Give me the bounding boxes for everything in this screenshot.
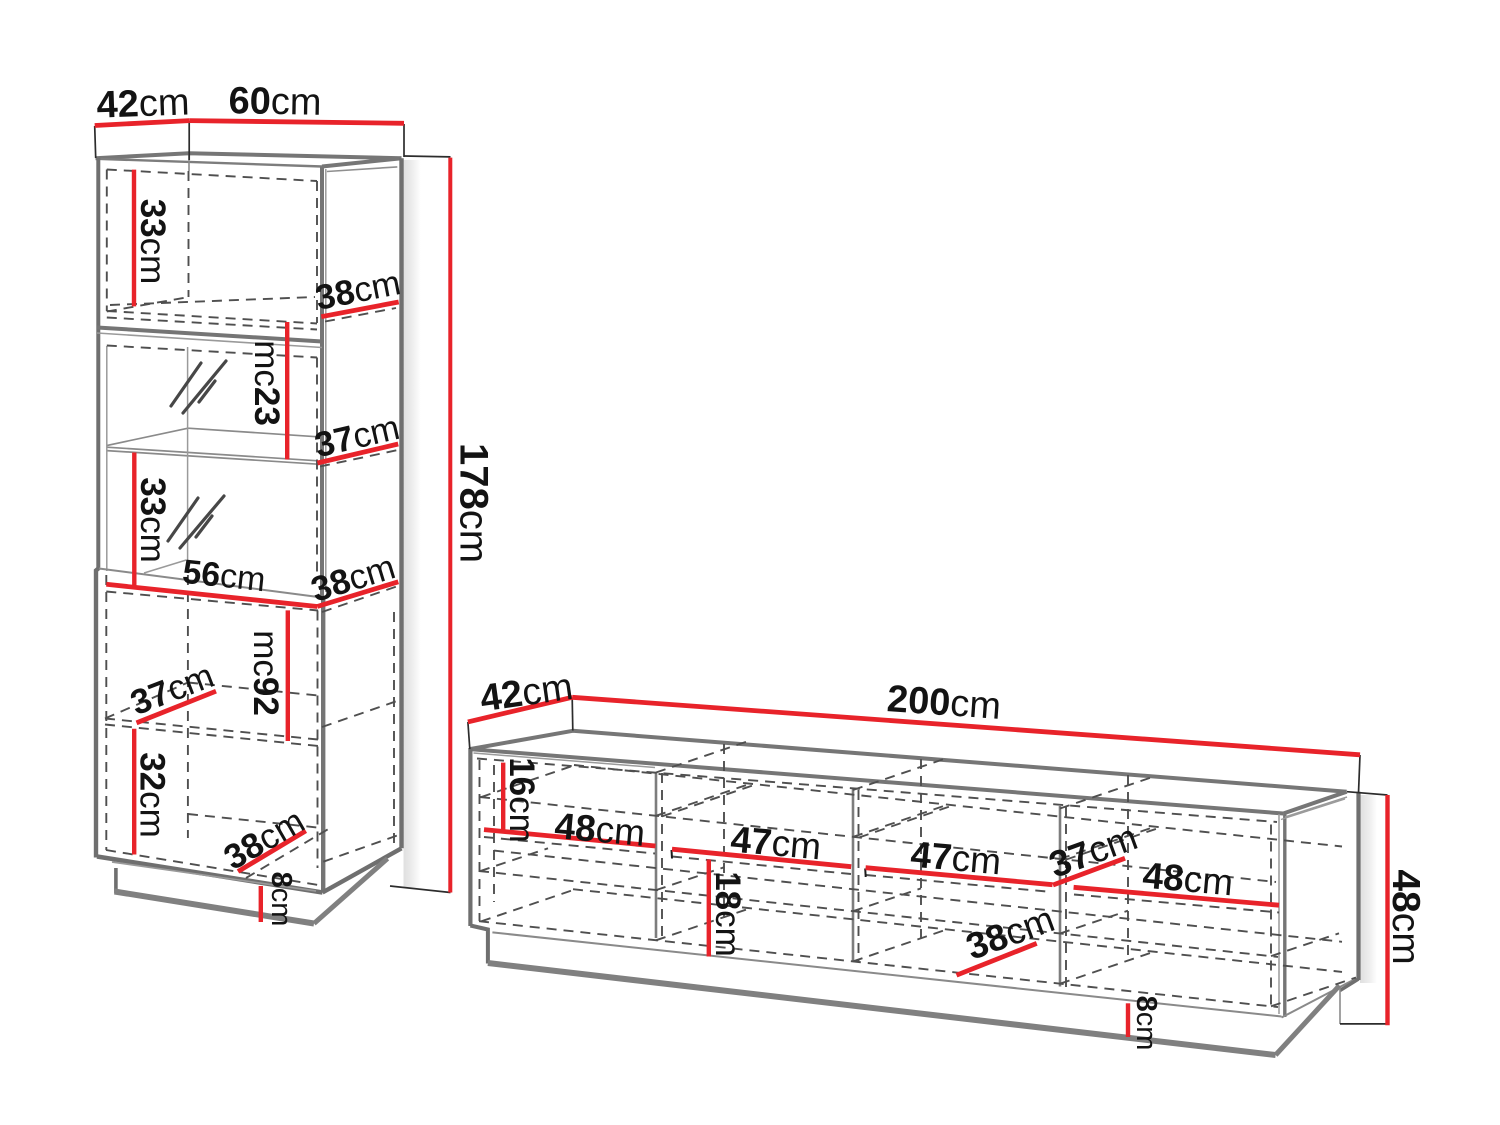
svg-text:mc23: mc23 — [248, 340, 287, 426]
svg-text:48cm: 48cm — [553, 805, 647, 854]
svg-text:178cm: 178cm — [452, 443, 496, 563]
svg-text:47cm: 47cm — [729, 818, 823, 867]
svg-text:32cm: 32cm — [133, 752, 172, 838]
svg-text:33cm: 33cm — [134, 477, 173, 563]
svg-text:42cm: 42cm — [96, 81, 190, 126]
svg-text:60cm: 60cm — [228, 80, 322, 124]
svg-text:8cm: 8cm — [265, 872, 297, 927]
svg-text:18cm: 18cm — [709, 871, 748, 957]
svg-text:48cm: 48cm — [1141, 854, 1235, 903]
svg-text:47cm: 47cm — [909, 833, 1003, 882]
svg-text:mc92: mc92 — [247, 630, 286, 716]
svg-text:200cm: 200cm — [886, 678, 1003, 728]
svg-text:8cm: 8cm — [1130, 996, 1162, 1051]
svg-text:16cm: 16cm — [503, 757, 542, 843]
svg-text:33cm: 33cm — [134, 199, 173, 285]
svg-text:48cm: 48cm — [1385, 869, 1428, 964]
